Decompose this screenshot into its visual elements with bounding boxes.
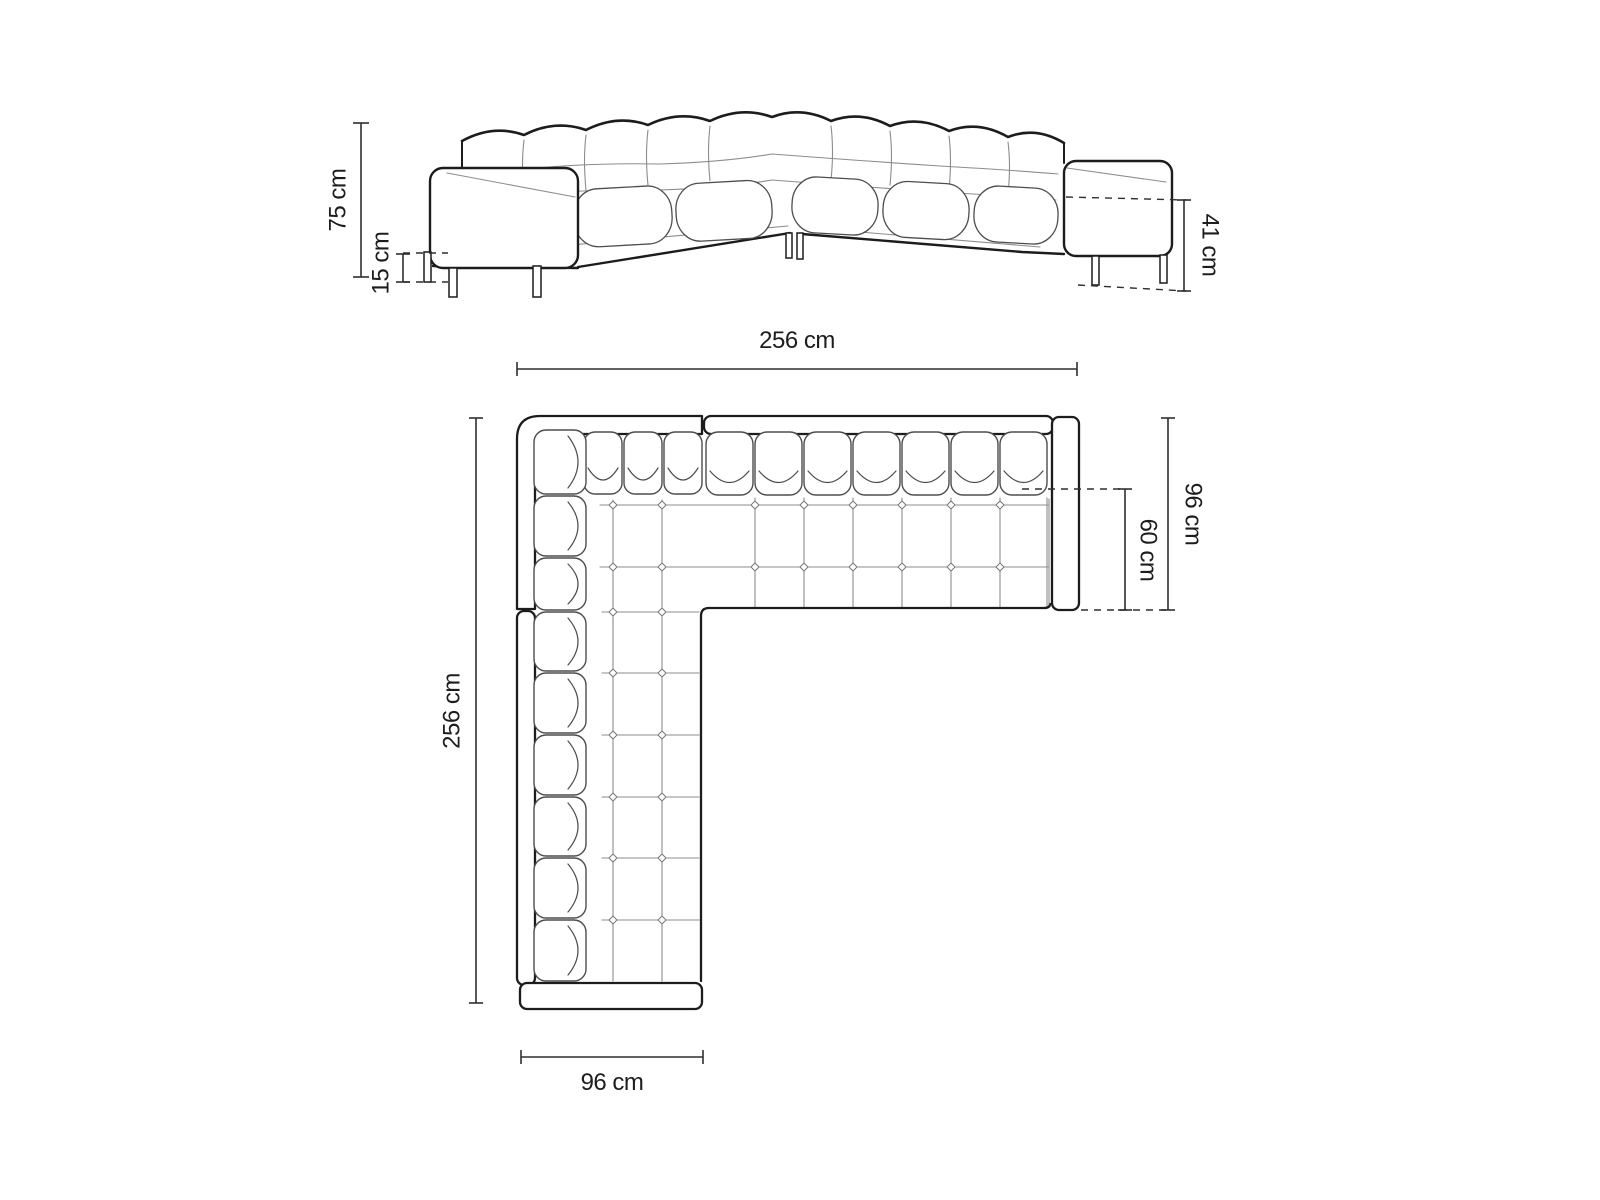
top-plan-drawing	[517, 416, 1079, 1009]
dimension-chaise-width: 96 cm	[521, 1050, 703, 1096]
diagram-svg: 75 cm 15 cm 41 cm 256 cm 256 cm 96 cm	[0, 0, 1600, 1200]
dimension-total-height: 75 cm	[324, 123, 369, 277]
dimension-label-total-height: 75 cm	[324, 169, 351, 232]
dimension-label-leg-height: 15 cm	[367, 232, 394, 295]
sofa-dimension-diagram: 75 cm 15 cm 41 cm 256 cm 256 cm 96 cm	[0, 0, 1600, 1200]
dimension-label-total-length: 256 cm	[438, 673, 465, 749]
dimension-label-total-width: 256 cm	[759, 327, 835, 354]
dimension-side-depth: 96 cm	[1161, 418, 1207, 610]
front-elevation-drawing	[424, 112, 1172, 297]
dimension-label-side-depth: 96 cm	[1180, 483, 1207, 546]
dimension-extension-dash	[1078, 285, 1186, 291]
dimension-label-chaise-width: 96 cm	[581, 1069, 644, 1096]
dimension-seat-depth: 60 cm	[1022, 489, 1168, 610]
dimension-label-seat-depth: 60 cm	[1135, 519, 1162, 582]
dimension-total-width: 256 cm	[517, 327, 1077, 376]
dimension-label-arm-seat-height: 41 cm	[1197, 214, 1224, 277]
dimension-total-length: 256 cm	[438, 418, 483, 1003]
